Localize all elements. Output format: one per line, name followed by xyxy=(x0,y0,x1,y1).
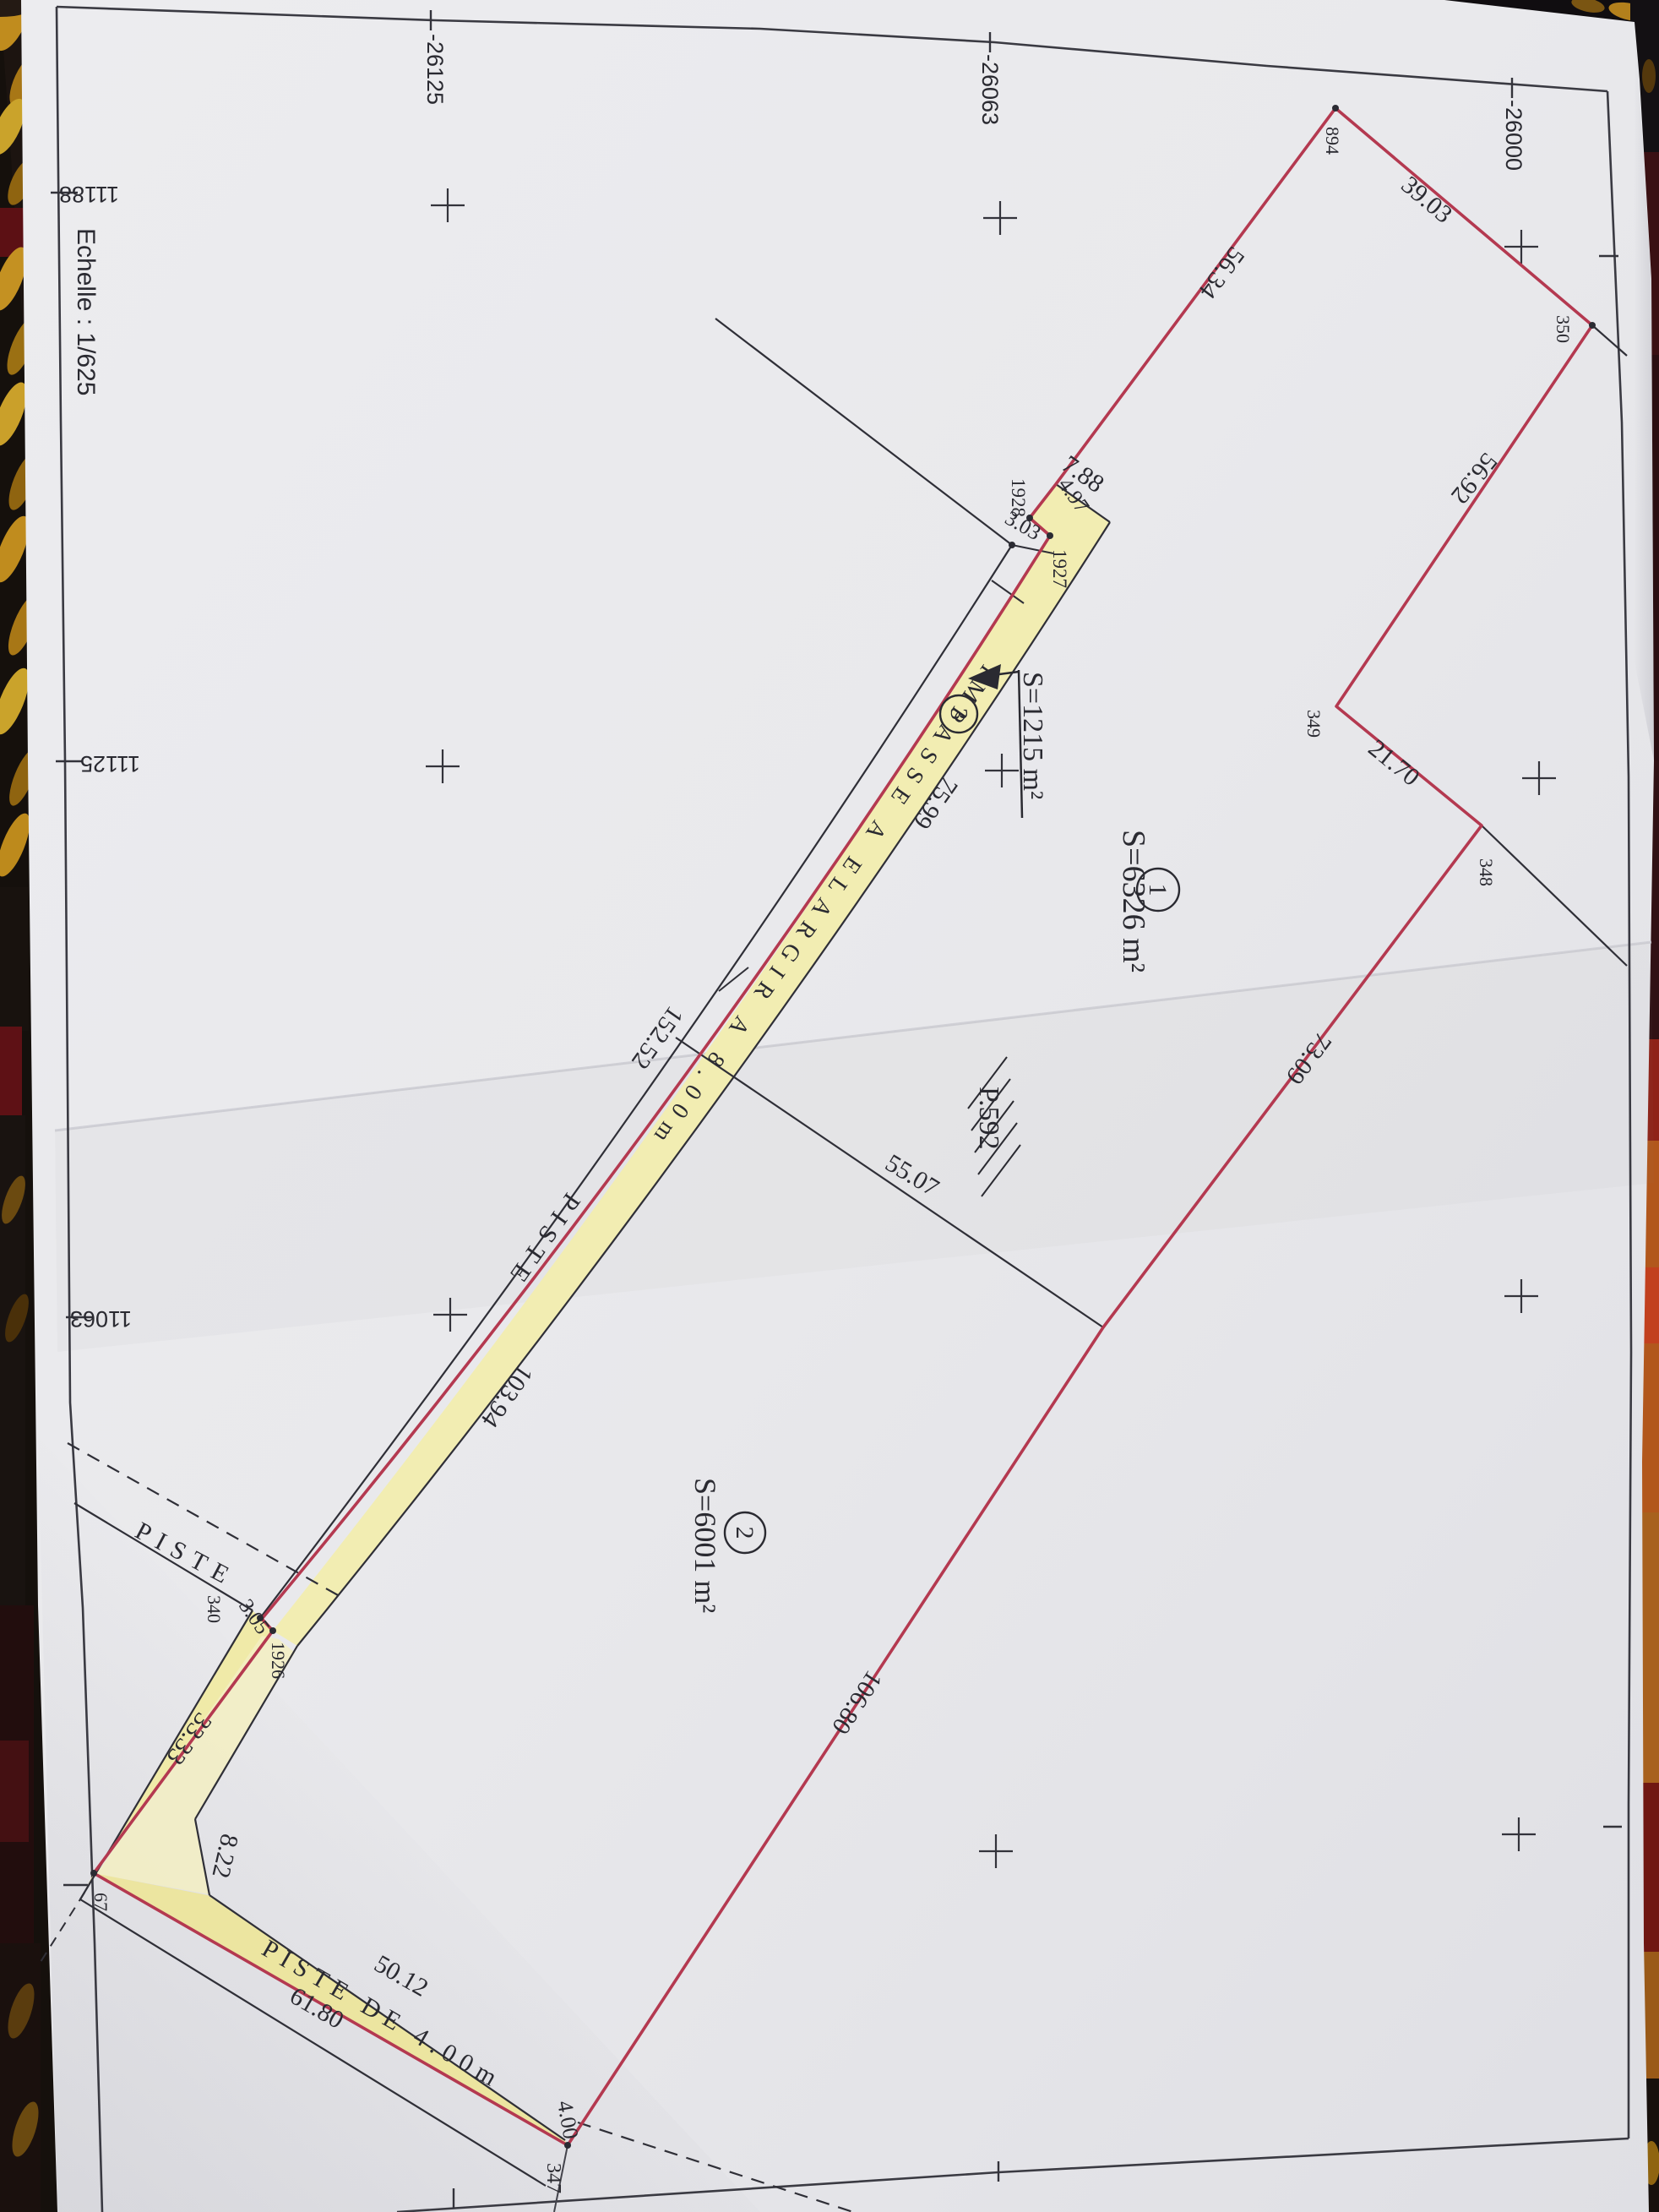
svg-text:11063: 11063 xyxy=(70,1306,132,1332)
svg-text:-26125: -26125 xyxy=(422,34,448,105)
svg-text:1926: 1926 xyxy=(268,1642,289,1679)
svg-text:1927: 1927 xyxy=(1049,549,1070,588)
svg-text:S=6326 m²: S=6326 m² xyxy=(1116,830,1151,973)
svg-text:S=6001 m²: S=6001 m² xyxy=(688,1478,722,1613)
svg-text:347: 347 xyxy=(542,2163,564,2193)
svg-text:894: 894 xyxy=(1322,127,1343,155)
svg-text:349: 349 xyxy=(1303,710,1324,738)
svg-text:Echelle : 1/625: Echelle : 1/625 xyxy=(72,228,100,395)
svg-text:350: 350 xyxy=(1553,315,1574,343)
svg-text:2: 2 xyxy=(731,1527,759,1539)
svg-text:1928: 1928 xyxy=(1008,478,1029,517)
svg-text:3: 3 xyxy=(945,708,971,720)
svg-text:11188: 11188 xyxy=(59,182,119,207)
svg-text:1: 1 xyxy=(1144,884,1172,896)
svg-text:11125: 11125 xyxy=(80,751,140,776)
svg-text:67: 67 xyxy=(90,1893,112,1911)
svg-text:-26063: -26063 xyxy=(977,54,1003,125)
svg-text:348: 348 xyxy=(1476,858,1497,886)
svg-text:340: 340 xyxy=(204,1595,225,1623)
svg-text:-26000: -26000 xyxy=(1501,100,1526,171)
